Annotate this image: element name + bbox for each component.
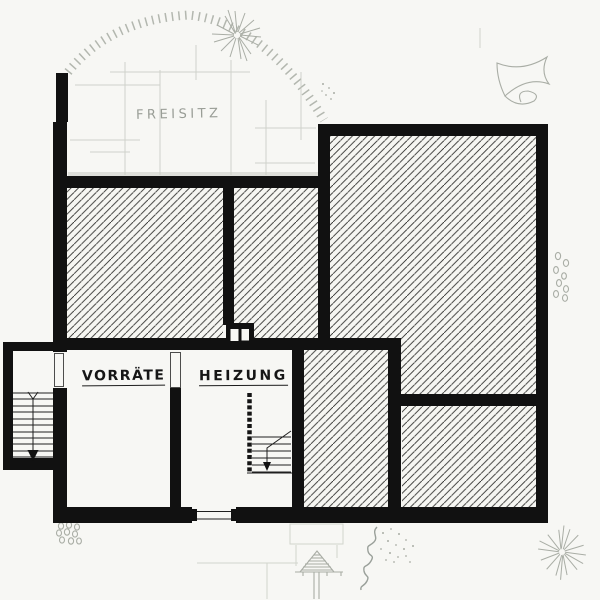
window-glazing-lines xyxy=(197,512,231,520)
north-arrow-icon xyxy=(295,551,343,599)
plant-starburst-icon xyxy=(529,519,595,586)
chimney xyxy=(226,323,254,348)
room-label-vorraete: VORRÄTE xyxy=(82,369,166,387)
annex-wall-west xyxy=(3,342,13,470)
floor-plan-sheet: FREISITZ VORRÄTE HEIZUNG xyxy=(0,0,600,600)
hatch-room-south-middle xyxy=(304,350,388,507)
annex-wall-north xyxy=(3,342,53,351)
annex-wall-south xyxy=(3,458,53,470)
room-label-heizung: HEIZUNG xyxy=(199,369,288,387)
window-jamb xyxy=(192,509,197,521)
stair-arrow-head xyxy=(263,462,271,471)
wall-west-upper xyxy=(56,73,68,122)
hatch-room-large-east-lower xyxy=(401,338,536,394)
hatch-room-south-east xyxy=(402,406,536,507)
hatch-room-middle xyxy=(234,188,318,338)
wall-vorraete-heizung-divider xyxy=(170,388,181,507)
wall-top-large-room xyxy=(318,124,548,136)
pebbles-southwest xyxy=(57,522,82,544)
pebbles-east xyxy=(554,252,569,301)
wall-south-left xyxy=(53,507,192,523)
hatch-room-large-east xyxy=(330,136,536,338)
wall-west-middle-divider xyxy=(223,188,234,325)
floor-plan-drawing xyxy=(0,0,600,600)
wall-top-main xyxy=(53,176,330,188)
hatch-room-west xyxy=(67,188,223,338)
wall-step-vertical xyxy=(388,338,401,523)
wall-southeast-horizontal xyxy=(388,394,548,406)
stair-direction-line xyxy=(28,392,38,452)
handwritten-annotation xyxy=(361,527,377,590)
chimney-flue xyxy=(231,329,239,341)
door-gap-vorraete-heizung xyxy=(171,353,181,388)
room-label-freisitz: FREISITZ xyxy=(136,107,222,122)
window-jamb xyxy=(231,509,236,521)
window-opening xyxy=(192,509,236,521)
terrace-edge-shadow xyxy=(68,172,318,177)
stair-direction-line xyxy=(267,431,291,464)
staircase-heizung xyxy=(247,393,292,473)
shrub-cushion-icon xyxy=(497,57,549,104)
wall-east xyxy=(536,124,548,523)
chimney-flue xyxy=(242,329,250,341)
wall-large-room-west xyxy=(318,124,330,350)
staircase-west-annex xyxy=(13,392,53,461)
wall-heizung-east-divider xyxy=(292,350,304,507)
